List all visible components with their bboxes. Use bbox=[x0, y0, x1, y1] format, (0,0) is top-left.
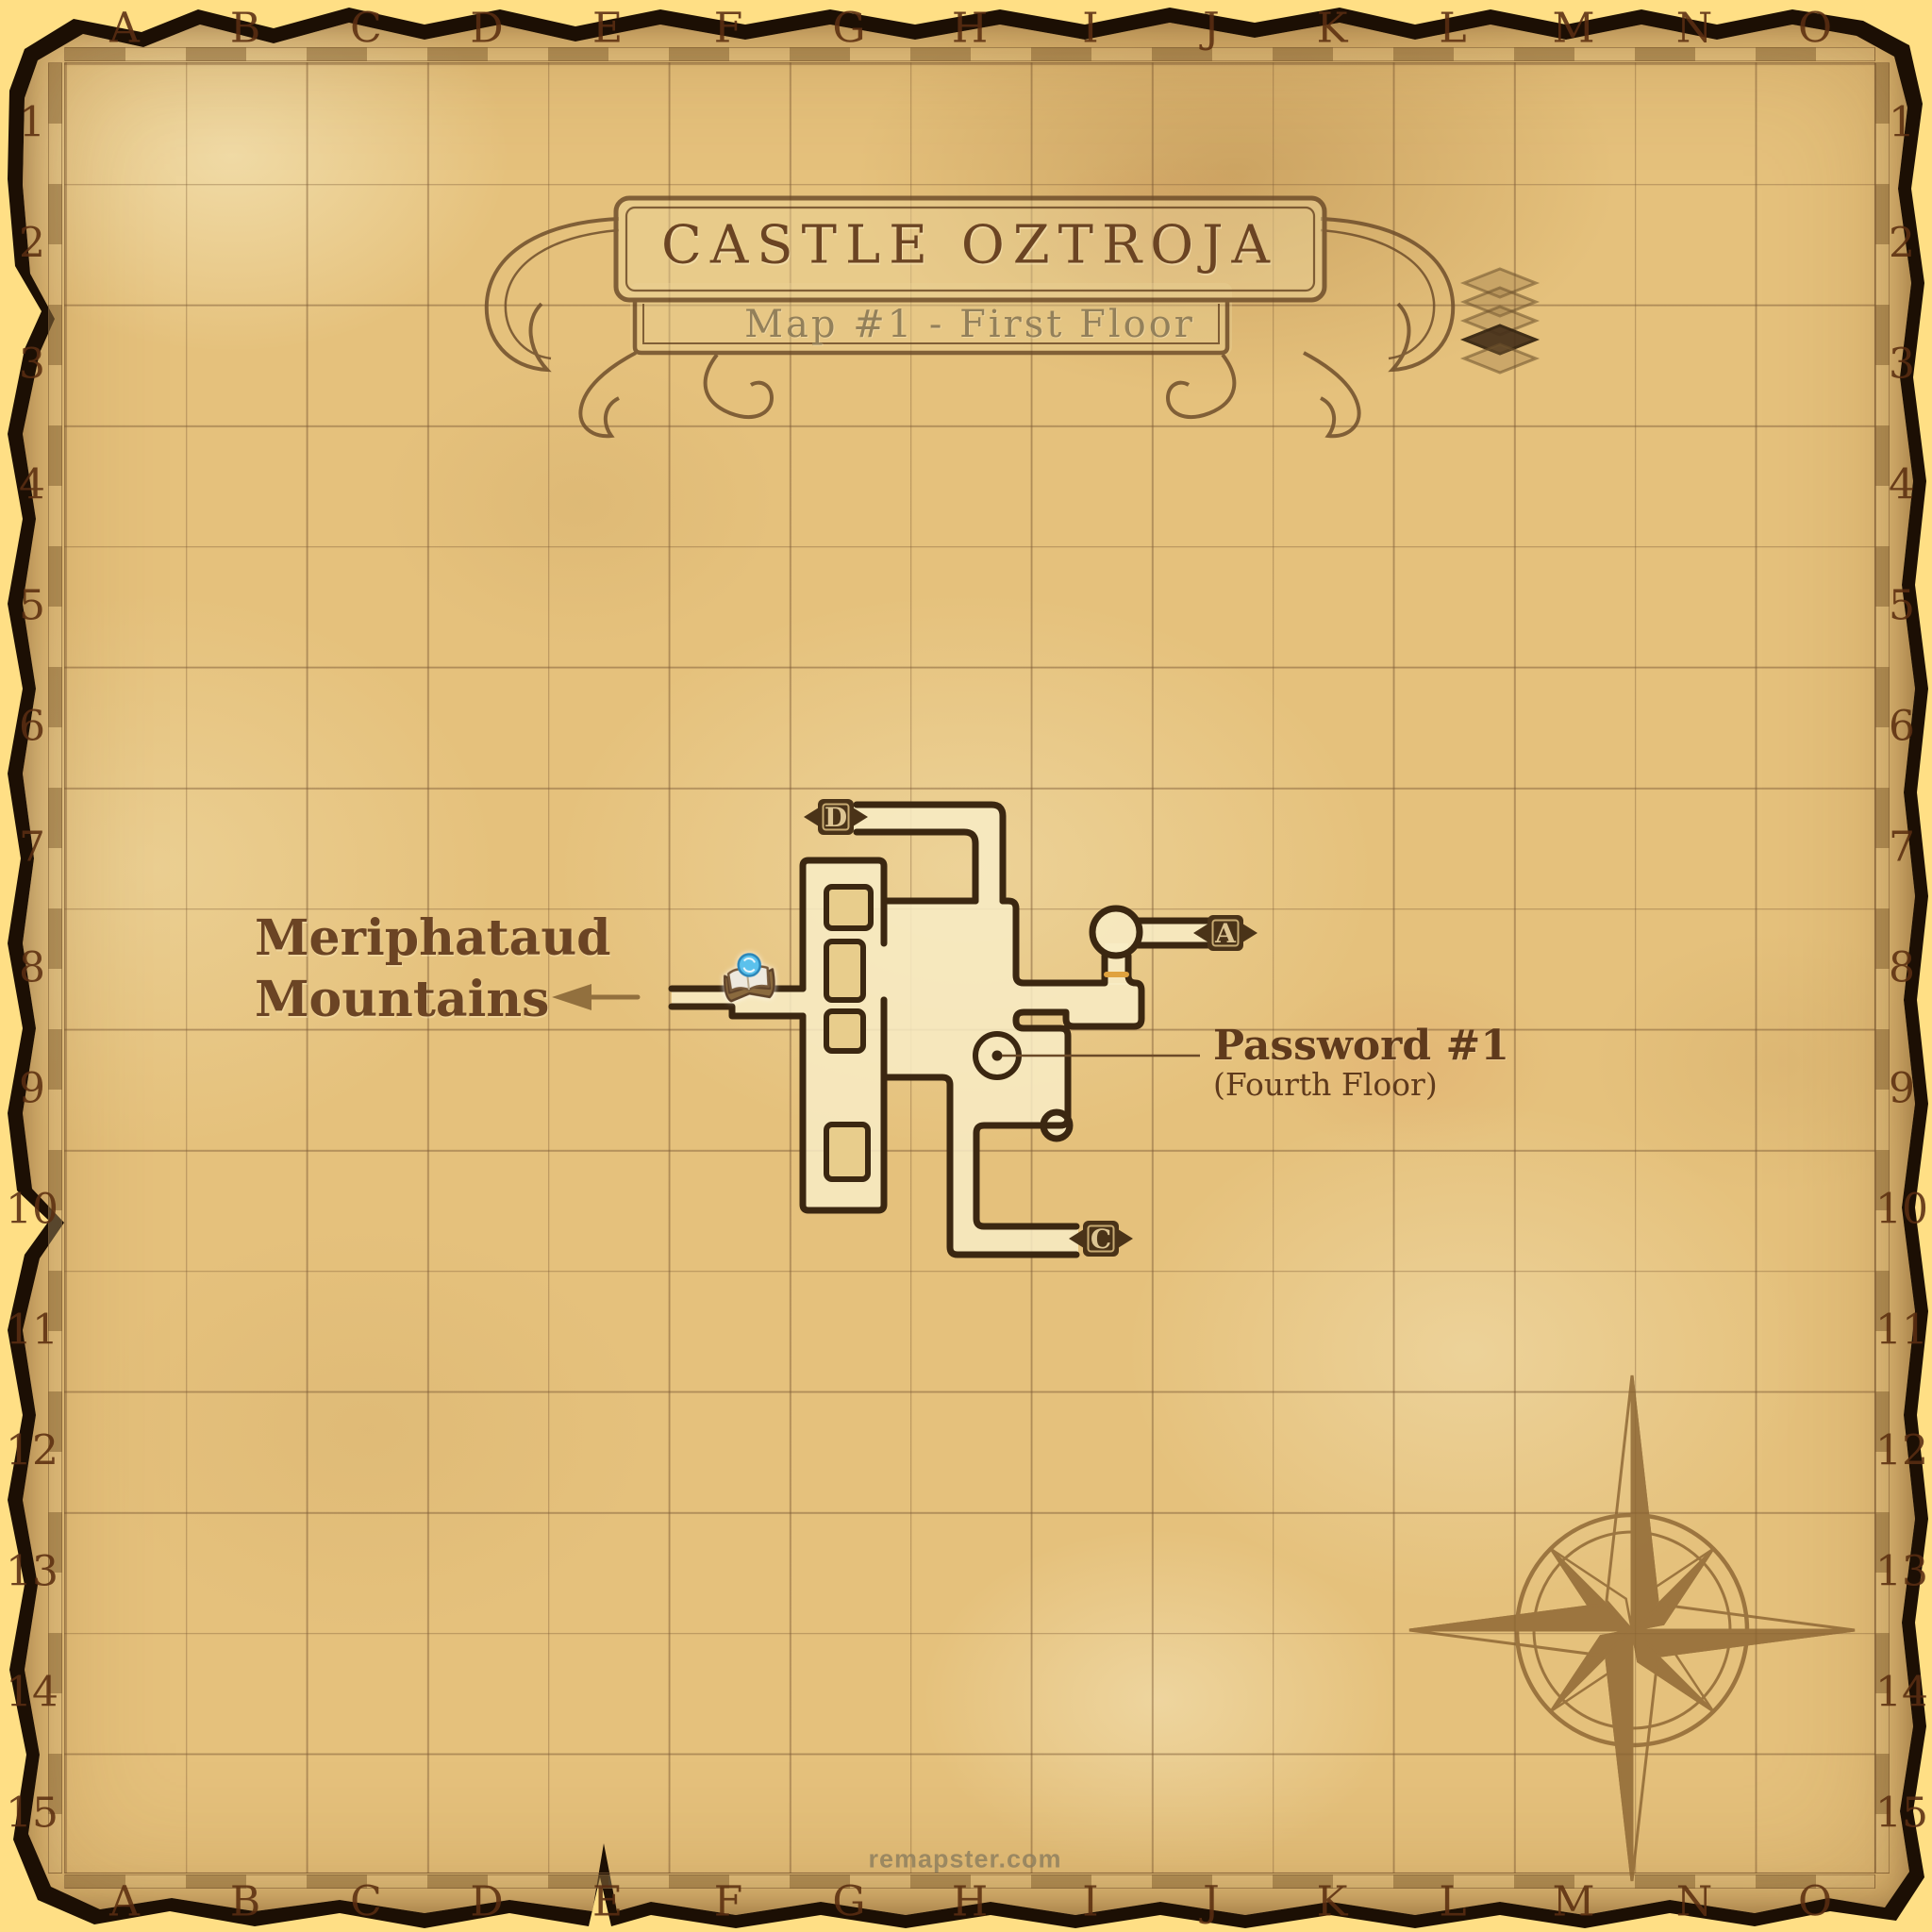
dungeon-floor bbox=[672, 805, 1219, 1255]
map-subtitle: Map #1 - First Floor bbox=[744, 303, 1195, 346]
west-exit-label-line2: Mountains bbox=[255, 969, 611, 1030]
password-sublabel: (Fourth Floor) bbox=[1213, 1066, 1438, 1103]
password-point bbox=[992, 1051, 1003, 1061]
exit-badge-D-label: D bbox=[824, 802, 847, 833]
west-exit-label: Meriphataud Mountains bbox=[255, 908, 611, 1030]
map-page: AABBCCDDEEFFGGHHIIJJKKLLMMNNOO1122334455… bbox=[0, 0, 1932, 1932]
exit-badge-C-label: C bbox=[1091, 1224, 1111, 1255]
exit-badge-A-label: A bbox=[1214, 918, 1237, 949]
layer-selector[interactable] bbox=[1464, 269, 1536, 373]
layer-diamond-5[interactable] bbox=[1464, 344, 1536, 373]
compass-rose-icon bbox=[1409, 1375, 1855, 1881]
password-label: Password #1 bbox=[1213, 1022, 1509, 1070]
west-exit-label-line1: Meriphataud bbox=[255, 908, 611, 969]
map-book-marker-icon[interactable] bbox=[722, 952, 775, 1002]
watermark: remapster.com bbox=[868, 1845, 1061, 1874]
dungeon-pillars bbox=[826, 887, 871, 1179]
map-title: CASTLE OZTROJA bbox=[661, 215, 1278, 276]
